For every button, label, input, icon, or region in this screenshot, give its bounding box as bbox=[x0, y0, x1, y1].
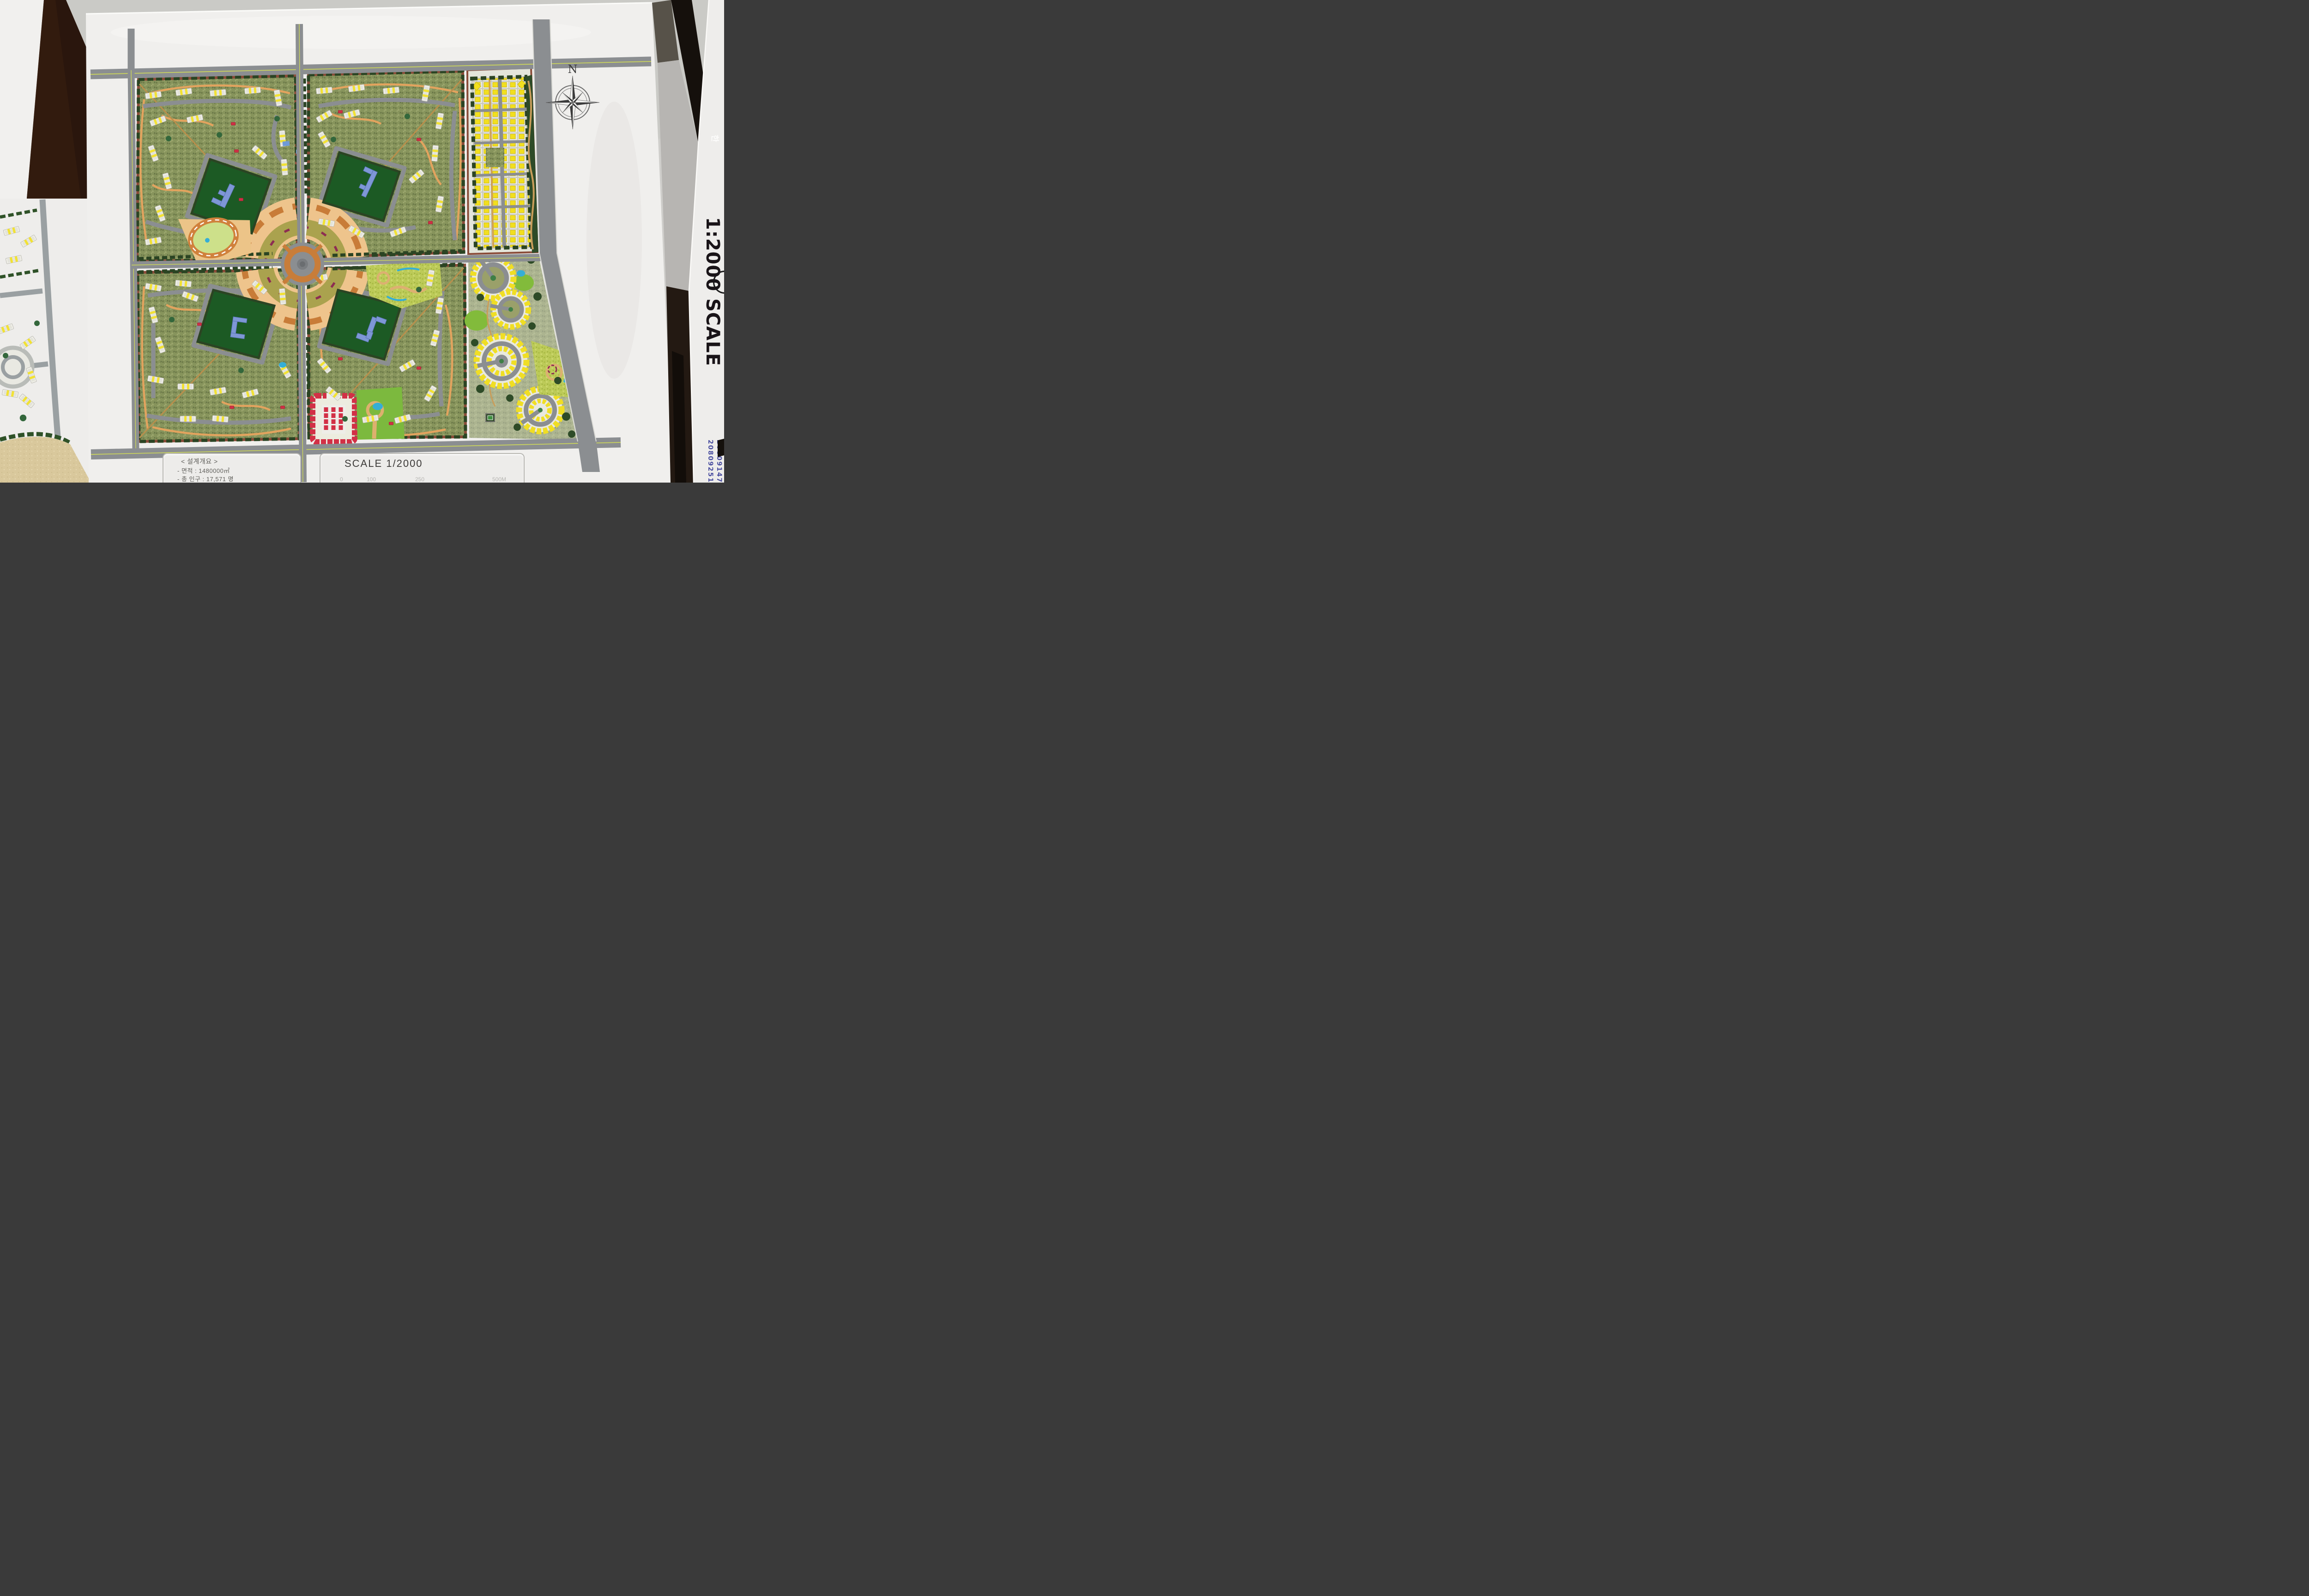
scale-tick-100: 100 bbox=[367, 476, 376, 483]
scale-tick-0: 0 bbox=[340, 476, 343, 483]
scene-graphics: N bbox=[0, 0, 724, 483]
dark-corner-object bbox=[718, 437, 724, 457]
handwritten-scale-note: 1:2000 SCALE bbox=[701, 217, 723, 429]
scale-panel: SCALE 1/2000 0 100 250 500M bbox=[320, 453, 525, 483]
design-area-row: - 면적 : 1480000㎡ bbox=[177, 467, 230, 475]
compass-north-label: N bbox=[568, 63, 578, 76]
design-overview-panel: < 설계개요 > - 면적 : 1480000㎡ - 총 인구 : 17,571… bbox=[163, 453, 301, 483]
model-photo: N < 설계개요 > - 면적 : 1480000㎡ - 총 인구 : 17,5… bbox=[0, 0, 724, 483]
design-population-row: - 총 인구 : 17,571 명 bbox=[177, 475, 234, 483]
central-roundabout bbox=[281, 242, 324, 286]
scale-label: SCALE 1/2000 bbox=[345, 458, 423, 470]
rowhouse-grid bbox=[472, 77, 532, 248]
market-complex bbox=[313, 393, 355, 442]
scale-tick-500m: 500M bbox=[492, 476, 506, 483]
scale-tick-250: 250 bbox=[415, 476, 424, 483]
pond-park bbox=[357, 387, 405, 440]
student-id-2: 20809251 bbox=[706, 440, 714, 483]
design-overview-title: < 설계개요 > bbox=[181, 458, 218, 465]
sports-court bbox=[486, 414, 495, 422]
ghost-mark-1: 한 bbox=[711, 135, 721, 153]
